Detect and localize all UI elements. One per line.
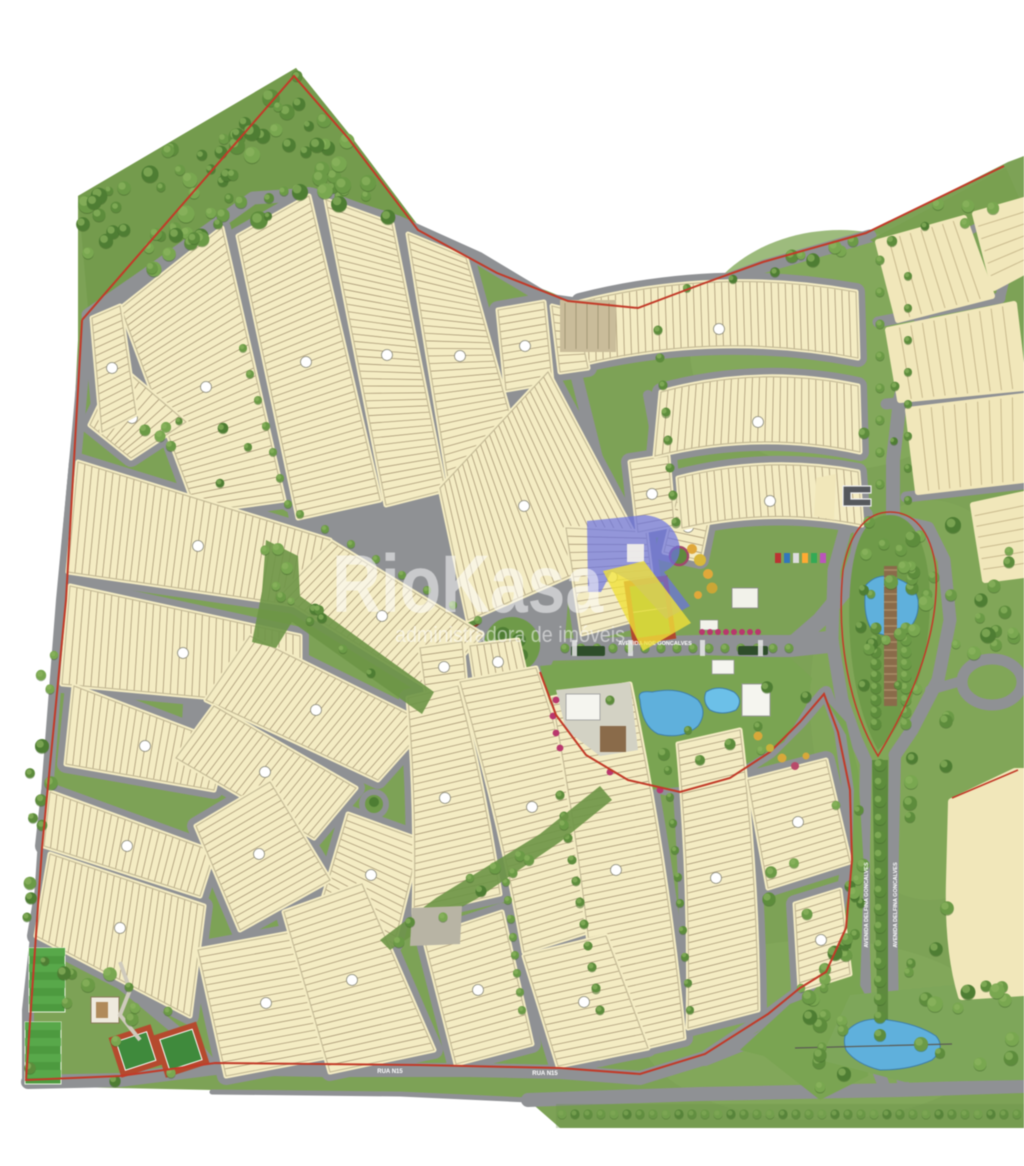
svg-text:AVENIDA DELFINA GONCALVES: AVENIDA DELFINA GONCALVES [864, 862, 870, 948]
svg-text:AVENIDA DELFINA GONCALVES: AVENIDA DELFINA GONCALVES [893, 862, 899, 948]
svg-text:administradora de imóveis: administradora de imóveis [395, 622, 625, 647]
svg-text:RioKasa: RioKasa [332, 539, 604, 630]
svg-text:RUA N15: RUA N15 [532, 1071, 558, 1077]
svg-text:RUA N15: RUA N15 [377, 1069, 403, 1075]
